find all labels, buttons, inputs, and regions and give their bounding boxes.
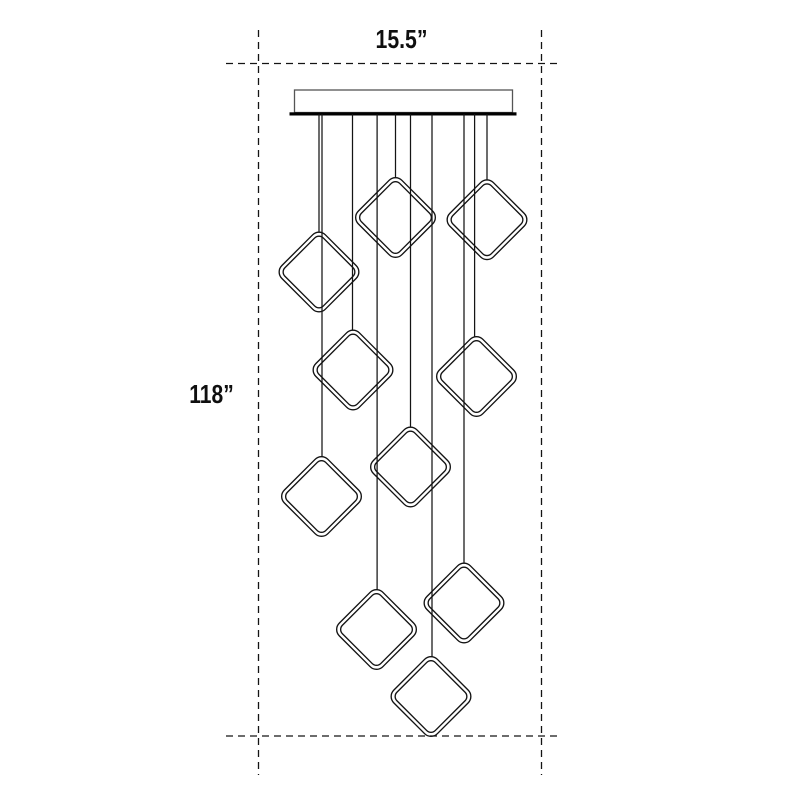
svg-text:118”: 118” [189, 379, 234, 409]
svg-text:15.5”: 15.5” [376, 24, 428, 54]
